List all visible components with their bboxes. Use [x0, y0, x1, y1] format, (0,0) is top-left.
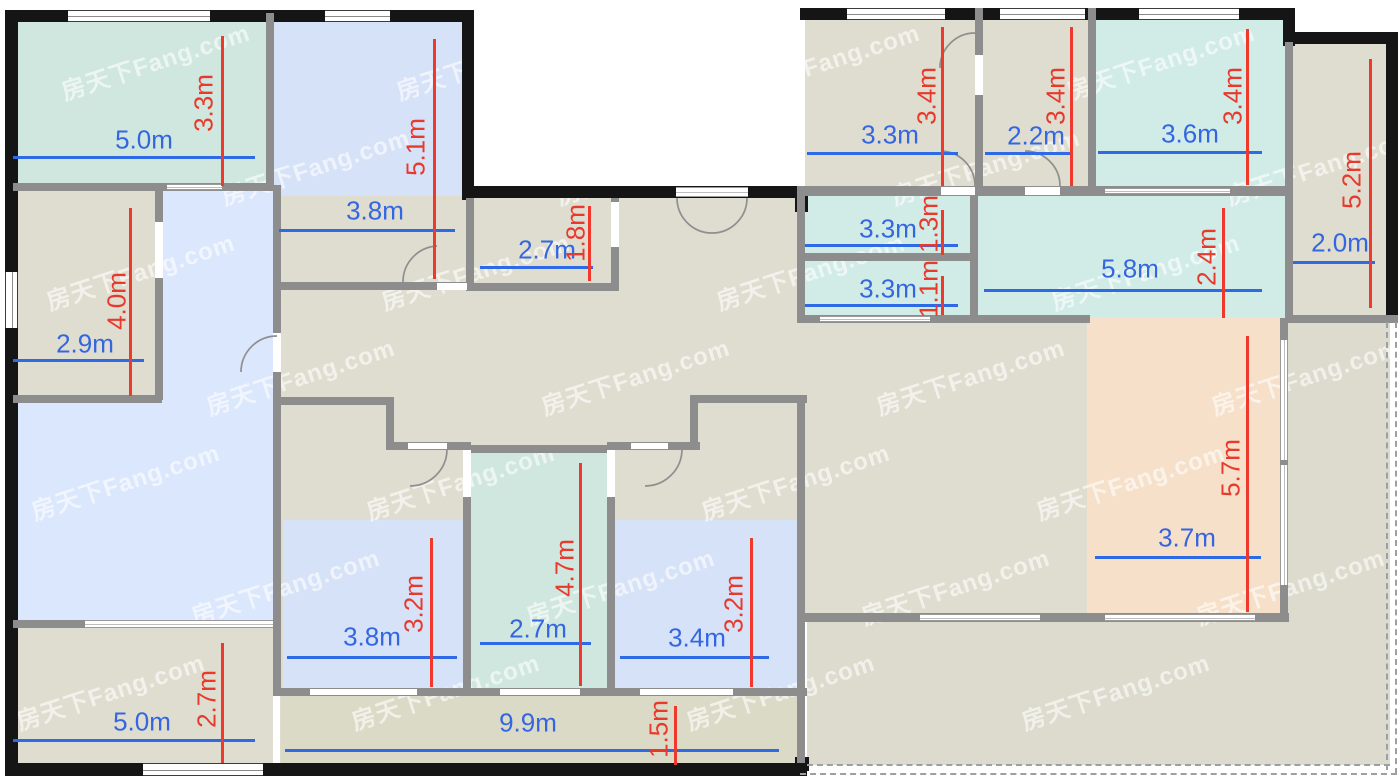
dim-v-label: 4.7m [550, 539, 581, 597]
interior-wall [1088, 8, 1096, 188]
dim-h-label: 9.9m [499, 708, 557, 739]
dim-v-label: 1.3m [914, 195, 945, 253]
interior-wall [797, 395, 805, 763]
exterior-wall [5, 763, 807, 776]
dim-v-label: 2.4m [1192, 228, 1223, 286]
terrace-dashed-line [1386, 322, 1388, 770]
dim-h-line [807, 152, 958, 155]
exterior-wall [5, 10, 18, 776]
floorplan-canvas: 房天下Fang.com房天下Fang.com房天下Fang.com房天下Fang… [0, 0, 1400, 779]
door-opening [941, 187, 975, 195]
interior-wall [466, 198, 474, 290]
window [5, 272, 18, 328]
room-fill-roomA-blue [283, 520, 464, 690]
exterior-wall [462, 10, 474, 200]
room-fill-bedroom-top-left [13, 13, 266, 185]
interior-wall [797, 186, 805, 323]
room-fill-corridor [161, 189, 273, 404]
exterior-wall [1283, 32, 1398, 44]
dim-h-line [1098, 151, 1262, 154]
interior-wall [266, 13, 274, 191]
interior-wall [273, 397, 393, 405]
dim-h-label: 2.9m [56, 329, 114, 360]
dim-h-line [279, 229, 455, 232]
room-fill-room-2-9 [13, 185, 161, 397]
window-opening [920, 614, 1040, 621]
dim-v-line [430, 538, 433, 687]
room-fill-roomC-blue [614, 520, 798, 690]
room-fill-room-bottom-left [13, 626, 273, 765]
dim-h-label: 3.4m [668, 623, 726, 654]
dim-h-label: 5.0m [115, 125, 173, 156]
dim-v-label: 1.5m [644, 700, 675, 758]
door-opening [310, 689, 417, 695]
interior-wall [797, 253, 978, 261]
room-fill-room-peach [1087, 318, 1282, 615]
dim-h-label: 2.7m [509, 614, 567, 645]
dim-v-label: 3.2m [399, 575, 430, 633]
dim-h-line [1293, 261, 1375, 264]
exterior-wall [462, 186, 807, 198]
dim-v-label: 3.3m [189, 74, 220, 132]
door-opening [611, 202, 619, 247]
terrace-dashed-line [1395, 322, 1397, 774]
dim-h-line [480, 266, 593, 269]
interior-wall [13, 620, 88, 628]
room-fill-terrace-bottom [807, 613, 1390, 765]
window-opening [85, 620, 273, 628]
dim-h-line [1095, 556, 1261, 559]
window [1000, 8, 1085, 20]
dim-v-label: 4.0m [102, 272, 133, 330]
dim-h-label: 3.6m [1161, 119, 1219, 150]
dim-v-line [1369, 59, 1372, 308]
interior-wall [470, 445, 610, 453]
door-opening [437, 283, 467, 290]
dim-v-line [433, 39, 436, 279]
window-opening [1280, 465, 1288, 585]
dim-h-label: 3.8m [346, 196, 404, 227]
dim-v-label: 1.8m [561, 204, 592, 262]
dim-v-line [221, 36, 224, 186]
door-opening [1025, 187, 1060, 195]
room-fill-roomB-teal [470, 450, 608, 690]
dim-h-label: 3.3m [859, 274, 917, 305]
dim-h-label: 3.7m [1158, 523, 1216, 554]
dim-h-label: 3.3m [861, 120, 919, 151]
dim-h-line [984, 289, 1262, 292]
interior-wall [690, 397, 698, 450]
dim-v-label: 5.7m [1216, 439, 1247, 497]
dim-v-label: 5.1m [401, 118, 432, 176]
dim-v-line [750, 538, 753, 687]
door-opening [408, 443, 447, 449]
window [847, 8, 945, 20]
window-opening [676, 187, 748, 197]
window-opening [1280, 340, 1288, 460]
exterior-wall [1386, 32, 1398, 318]
door-opening [463, 450, 471, 497]
dim-h-line [285, 749, 779, 752]
door-opening [975, 55, 983, 95]
window-opening [1105, 188, 1230, 194]
dim-h-line [985, 152, 1072, 155]
dim-h-line [13, 739, 255, 742]
window [143, 763, 263, 776]
interior-wall [466, 283, 619, 291]
terrace-dashed-line [800, 773, 1397, 775]
door-opening [607, 450, 615, 497]
dim-h-label: 3.8m [343, 622, 401, 653]
dim-v-label: 3.2m [719, 575, 750, 633]
window [325, 10, 390, 22]
dim-v-label: 3.4m [1218, 67, 1249, 125]
door-opening [155, 222, 163, 278]
dim-h-line [13, 156, 255, 159]
dim-v-label: 3.4m [912, 67, 943, 125]
dim-v-label: 1.1m [914, 260, 945, 318]
dim-h-label: 2.2m [1007, 121, 1065, 152]
dim-h-label: 2.0m [1311, 228, 1369, 259]
room-fill-room-top-right-1 [805, 13, 977, 188]
dim-h-line [620, 656, 769, 659]
interior-wall [970, 186, 978, 323]
interior-wall [975, 8, 983, 188]
window-opening [1105, 614, 1255, 621]
room-fill-room-3-6 [1094, 13, 1285, 188]
dim-h-label: 5.0m [113, 707, 171, 738]
window [68, 10, 210, 22]
room-fill-living-room [13, 400, 273, 622]
dim-h-label: 5.8m [1101, 254, 1159, 285]
door-opening [273, 333, 281, 372]
terrace-dashed-line [807, 764, 1390, 766]
room-fill-room-top-right-2 [981, 13, 1090, 188]
interior-wall [690, 395, 807, 403]
interior-wall [13, 183, 266, 191]
room-fill-terrace-right [1285, 318, 1390, 615]
door-opening [631, 443, 668, 449]
interior-wall [13, 395, 162, 403]
dim-h-label: 3.3m [859, 214, 917, 245]
window [1139, 8, 1239, 20]
window-opening [167, 184, 222, 190]
dim-v-label: 3.4m [1041, 67, 1072, 125]
interior-wall [1285, 42, 1293, 320]
interior-wall [273, 185, 281, 688]
dim-v-label: 5.2m [1337, 151, 1368, 209]
door-opening [500, 689, 580, 695]
interior-wall [1285, 315, 1398, 323]
door-opening [640, 689, 733, 695]
dim-v-label: 2.7m [192, 670, 223, 728]
